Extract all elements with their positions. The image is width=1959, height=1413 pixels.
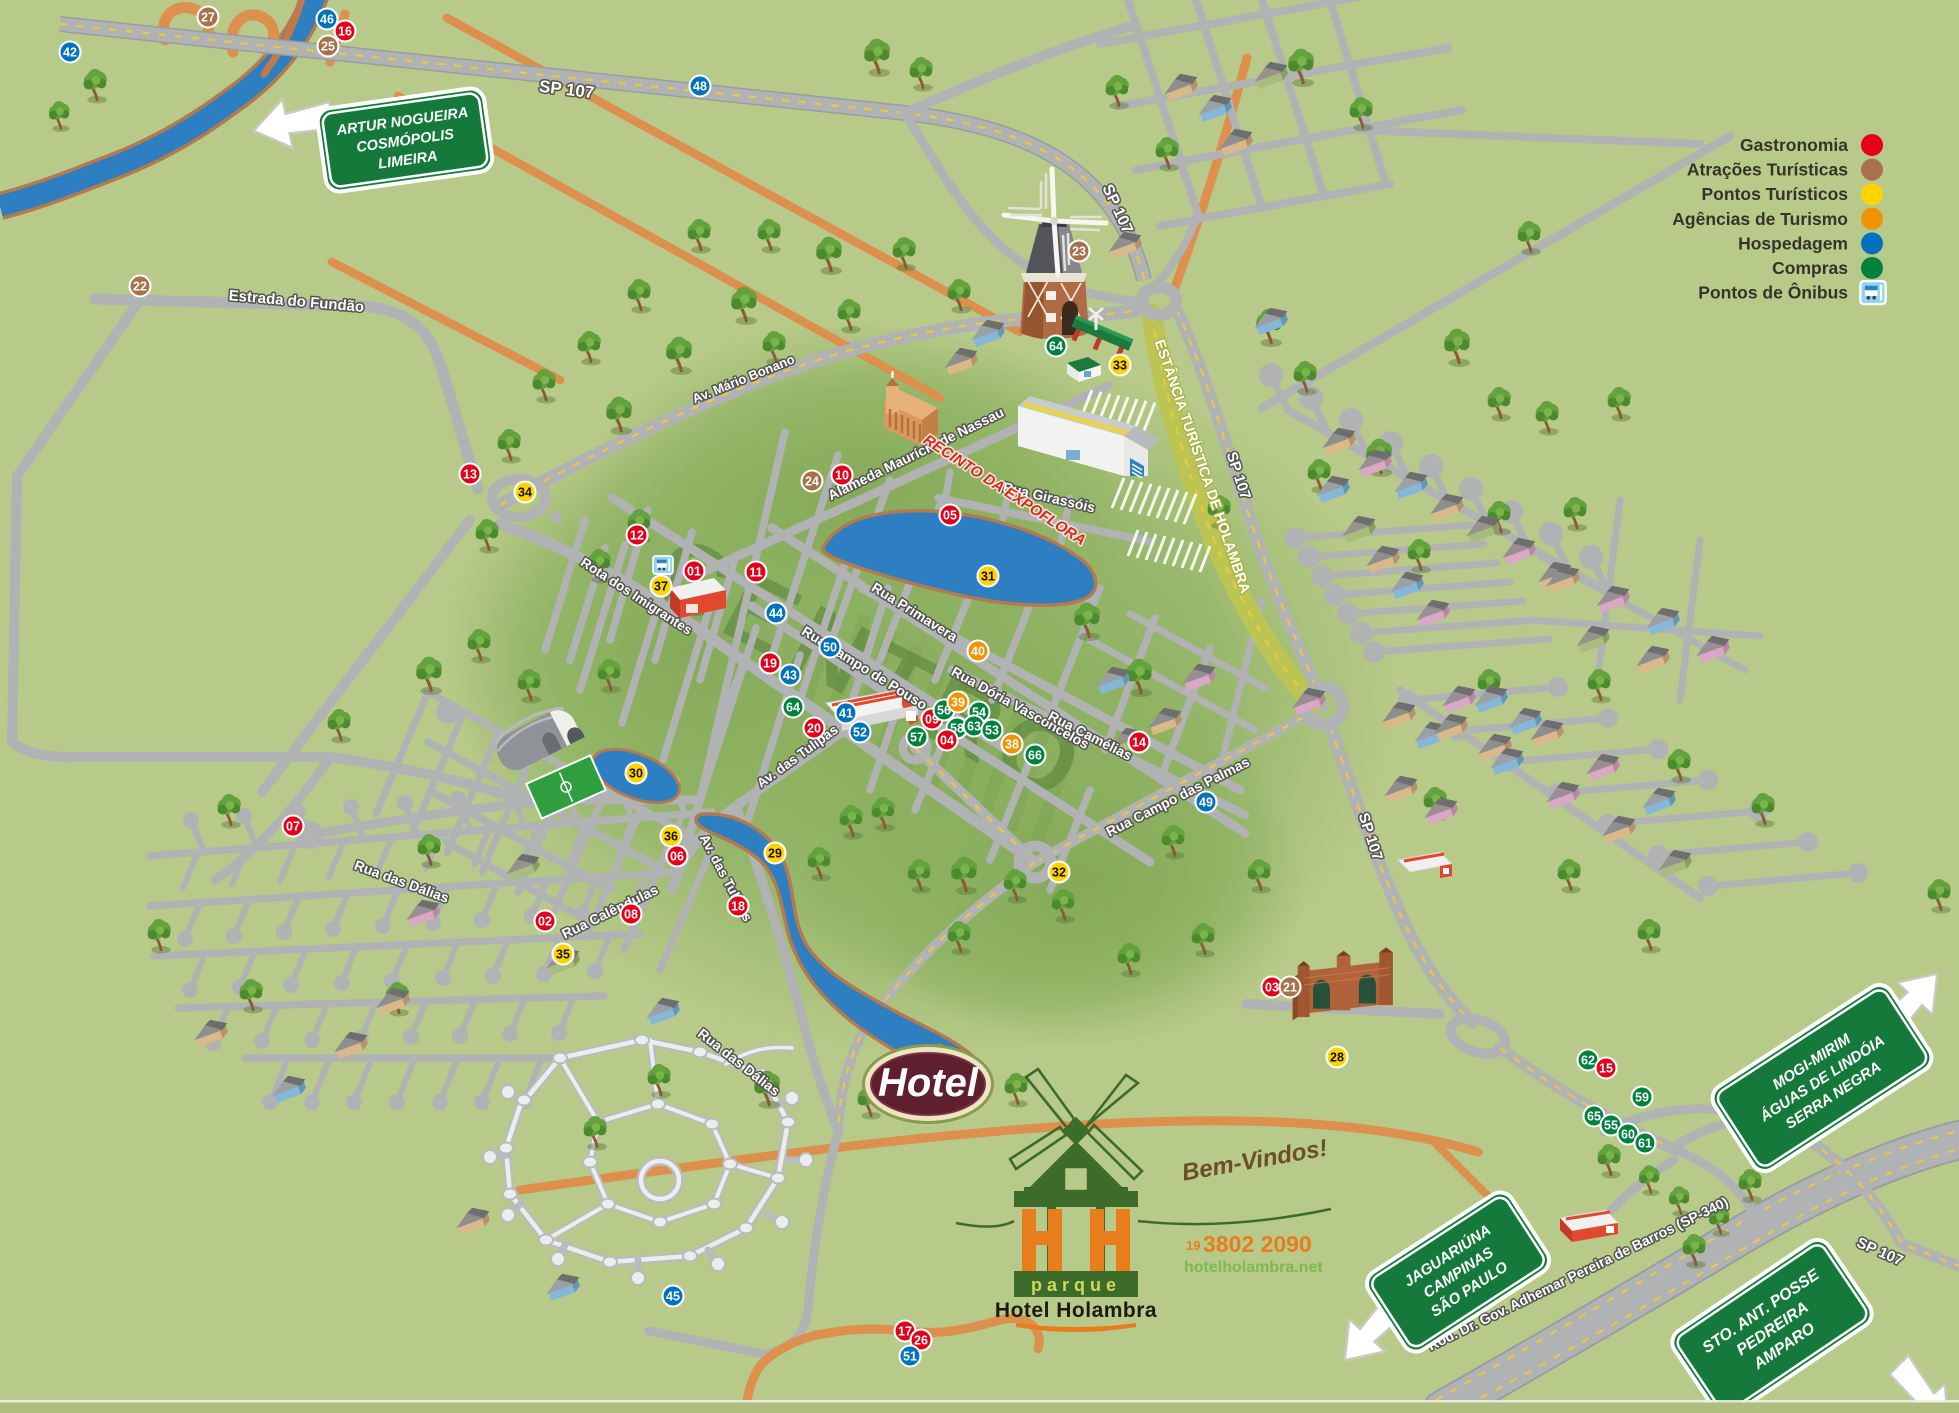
svg-text:parque: parque: [1031, 1275, 1121, 1295]
svg-text:42: 42: [63, 46, 77, 60]
svg-text:23: 23: [1072, 245, 1086, 259]
svg-text:Agências de Turismo: Agências de Turismo: [1672, 209, 1848, 229]
svg-text:Compras: Compras: [1772, 258, 1848, 278]
svg-text:17: 17: [898, 1325, 912, 1339]
svg-text:22: 22: [133, 280, 147, 294]
svg-text:24: 24: [805, 475, 819, 489]
svg-text:31: 31: [981, 570, 995, 584]
svg-text:21: 21: [1283, 981, 1297, 995]
svg-text:39: 39: [951, 696, 965, 710]
svg-text:48: 48: [693, 80, 707, 94]
svg-text:26: 26: [914, 1334, 928, 1348]
svg-text:06: 06: [670, 850, 684, 864]
svg-text:13: 13: [463, 468, 477, 482]
svg-text:Atrações Turísticas: Atrações Turísticas: [1687, 160, 1848, 180]
svg-text:29: 29: [768, 847, 782, 861]
svg-text:55: 55: [1604, 1119, 1618, 1133]
svg-text:65: 65: [1587, 1110, 1601, 1124]
svg-text:08: 08: [624, 908, 638, 922]
svg-text:15: 15: [1599, 1062, 1613, 1076]
svg-text:63: 63: [967, 720, 981, 734]
svg-text:Hotel: Hotel: [878, 1061, 979, 1105]
svg-text:32: 32: [1052, 866, 1066, 880]
svg-text:25: 25: [321, 40, 335, 54]
svg-text:52: 52: [853, 726, 867, 740]
svg-text:60: 60: [1621, 1128, 1635, 1142]
svg-text:34: 34: [518, 486, 532, 500]
svg-text:Pontos Turísticos: Pontos Turísticos: [1702, 184, 1849, 204]
svg-text:05: 05: [943, 509, 957, 523]
svg-text:28: 28: [1330, 1051, 1344, 1065]
svg-text:59: 59: [1635, 1091, 1649, 1105]
svg-text:61: 61: [1638, 1137, 1652, 1151]
svg-text:57: 57: [910, 731, 924, 745]
svg-text:50: 50: [823, 641, 837, 655]
svg-text:hotelholambra.net: hotelholambra.net: [1184, 1259, 1323, 1276]
svg-text:41: 41: [839, 707, 853, 721]
svg-text:37: 37: [654, 580, 668, 594]
svg-text:44: 44: [769, 607, 783, 621]
svg-text:03: 03: [1265, 981, 1279, 995]
svg-text:43: 43: [783, 669, 797, 683]
svg-text:12: 12: [630, 529, 644, 543]
svg-text:11: 11: [749, 566, 762, 580]
svg-text:53: 53: [985, 724, 999, 738]
svg-text:27: 27: [201, 11, 215, 25]
svg-text:49: 49: [1199, 796, 1213, 810]
svg-text:36: 36: [664, 830, 678, 844]
svg-text:35: 35: [556, 948, 570, 962]
svg-text:45: 45: [666, 1290, 680, 1304]
svg-text:02: 02: [538, 915, 552, 929]
svg-text:07: 07: [286, 820, 300, 834]
svg-text:38: 38: [1005, 738, 1019, 752]
svg-text:66: 66: [1028, 749, 1042, 763]
svg-text:20: 20: [807, 722, 821, 736]
svg-text:30: 30: [629, 767, 643, 781]
svg-text:19: 19: [763, 657, 777, 671]
svg-text:19: 19: [1186, 1238, 1200, 1253]
svg-text:62: 62: [1581, 1054, 1595, 1068]
svg-text:Hotel Holambra: Hotel Holambra: [995, 1299, 1157, 1322]
svg-text:18: 18: [731, 900, 745, 914]
svg-text:Pontos de Ônibus: Pontos de Ônibus: [1698, 282, 1848, 303]
svg-text:64: 64: [786, 701, 800, 715]
svg-text:Gastronomia: Gastronomia: [1740, 135, 1848, 155]
svg-text:3802 2090: 3802 2090: [1203, 1231, 1312, 1257]
svg-text:51: 51: [903, 1350, 917, 1364]
svg-text:Hospedagem: Hospedagem: [1738, 233, 1848, 253]
svg-text:46: 46: [320, 13, 334, 27]
svg-text:01: 01: [687, 565, 701, 579]
svg-text:16: 16: [338, 25, 352, 39]
svg-text:14: 14: [1132, 736, 1146, 750]
svg-text:33: 33: [1113, 359, 1127, 373]
svg-text:10: 10: [835, 469, 849, 483]
svg-text:64: 64: [1049, 340, 1063, 354]
svg-text:04: 04: [940, 734, 954, 748]
svg-text:40: 40: [971, 645, 985, 659]
